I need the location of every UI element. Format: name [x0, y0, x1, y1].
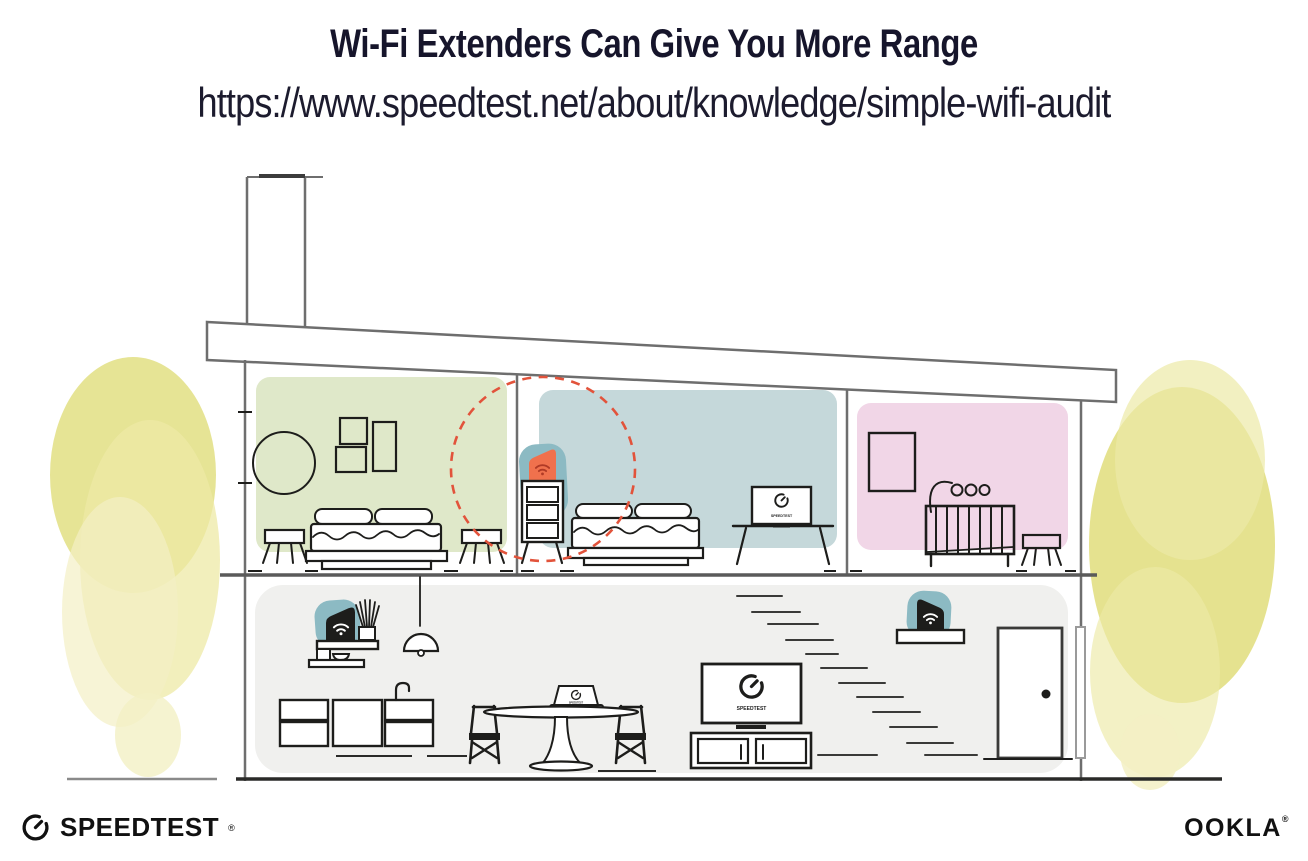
- ookla-wordmark: OOKLA: [1184, 814, 1282, 842]
- ookla-reg-mark: ®: [1282, 814, 1290, 824]
- watercolor-tree-right: [1089, 360, 1275, 790]
- speedtest-logo: SPEEDTEST®: [20, 812, 235, 843]
- wall-shelf-upper: [317, 641, 378, 649]
- tv-bedroom-label: SPEEDTEST: [771, 514, 793, 518]
- bed-blue: [568, 504, 703, 565]
- speedtest-wordmark: SPEEDTEST: [60, 812, 219, 843]
- laptop-on-table: SPEEDTEST: [554, 686, 598, 705]
- bed-green: [306, 509, 447, 569]
- tv-living-label: SPEEDTEST: [737, 706, 767, 712]
- speedtest-reg-mark: ®: [228, 823, 235, 833]
- house-illustration: SPEEDTEST: [0, 0, 1308, 861]
- dresser: [522, 481, 563, 563]
- infographic-page: Wi-Fi Extenders Can Give You More Range …: [0, 0, 1308, 861]
- speedtest-gauge-icon: [20, 812, 51, 843]
- tv-living: SPEEDTEST: [702, 664, 801, 729]
- tv-bedroom: SPEEDTEST: [752, 487, 811, 528]
- ookla-logo: OOKLA®: [1184, 814, 1290, 843]
- door-knob: [1042, 690, 1051, 699]
- nursery-pink-background: [857, 403, 1068, 550]
- media-console: [691, 733, 811, 768]
- stairs-shelf: [897, 630, 964, 643]
- front-door: [984, 628, 1072, 759]
- watercolor-tree-left: [50, 357, 220, 777]
- door-side-frame: [1076, 627, 1085, 758]
